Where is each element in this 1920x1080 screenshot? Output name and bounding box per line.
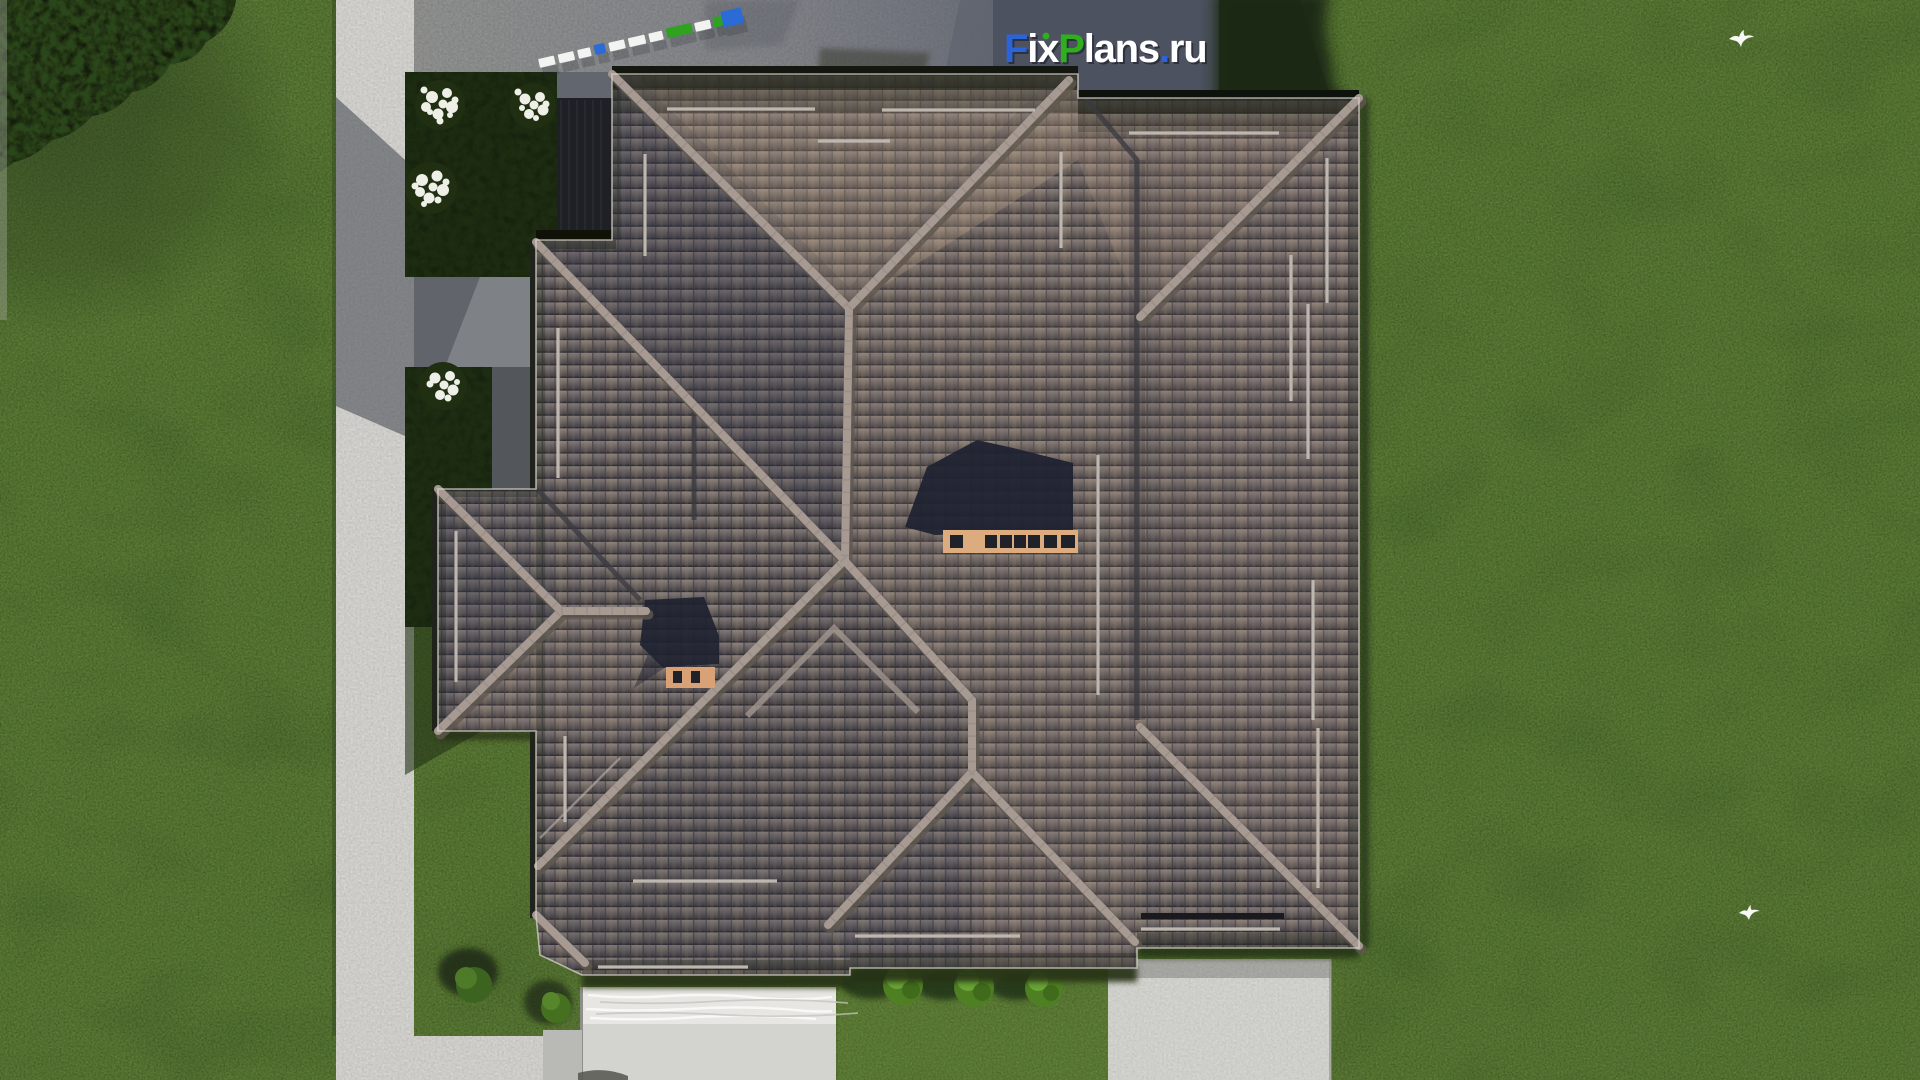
svg-text:FixPlans.ru: FixPlans.ru: [1004, 27, 1206, 71]
